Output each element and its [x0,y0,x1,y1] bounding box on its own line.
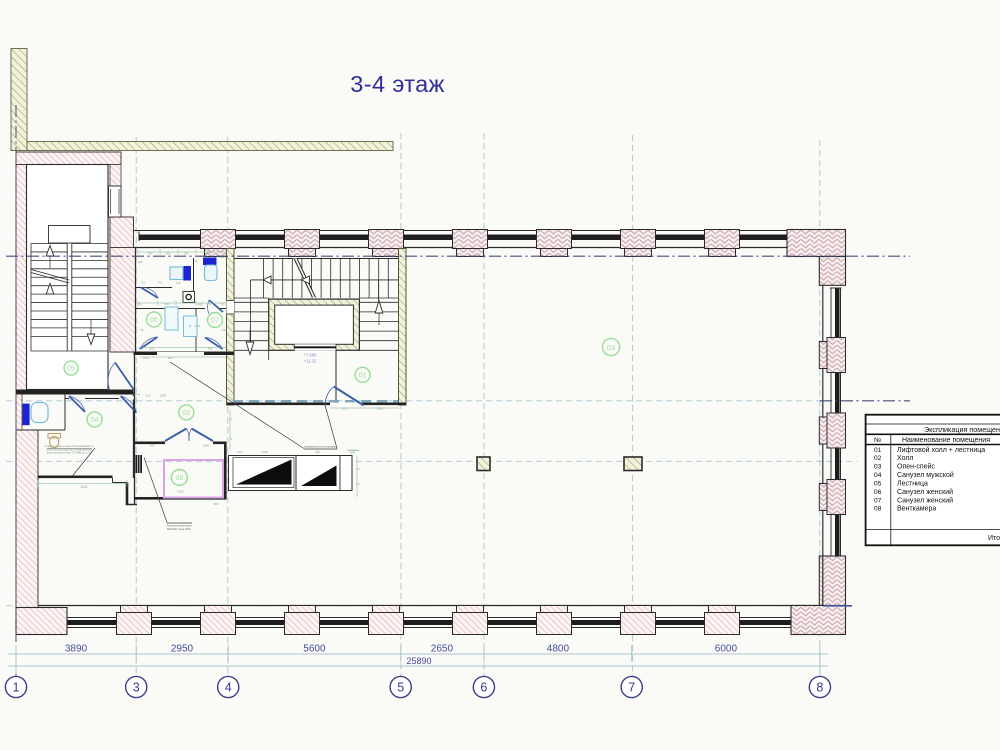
svg-text:2650: 2650 [431,644,454,655]
svg-text:895: 895 [208,347,213,351]
svg-text:Венткамера: Венткамера [897,506,936,513]
svg-text:Экспликация помещений: Экспликация помещений [924,425,1000,434]
svg-text:940: 940 [222,328,227,332]
svg-text:1485: 1485 [194,324,201,328]
svg-text:08: 08 [176,475,184,482]
svg-text:6000: 6000 [715,644,738,655]
svg-text:05: 05 [874,480,882,487]
svg-text:30: 30 [356,467,360,471]
svg-text:1500: 1500 [377,407,384,411]
svg-text:90: 90 [194,259,198,263]
svg-text:2640: 2640 [80,485,87,489]
svg-text:02: 02 [874,455,882,462]
svg-text:помещение для установки: помещение для установки [304,446,336,449]
svg-text:810: 810 [150,347,155,351]
svg-text:1540: 1540 [143,356,150,360]
svg-text:Наименование помещения: Наименование помещения [902,437,990,444]
svg-text:990: 990 [168,356,173,360]
svg-text:945: 945 [150,444,155,448]
svg-text:07: 07 [211,318,219,325]
svg-text:760: 760 [158,281,163,285]
svg-text:90: 90 [140,328,144,332]
svg-text:700: 700 [141,281,146,285]
svg-text:900: 900 [342,407,347,411]
svg-text:3890: 3890 [65,644,88,655]
svg-text:3: 3 [133,681,140,695]
svg-text:1885: 1885 [203,444,210,448]
svg-text:2950: 2950 [171,644,194,655]
svg-text:01: 01 [874,447,882,454]
svg-text:Санузел женский: Санузел женский [897,496,953,504]
svg-text:06: 06 [874,489,882,496]
svg-text:01: 01 [359,372,367,379]
svg-text:880: 880 [220,255,225,259]
svg-text:890: 890 [165,302,170,306]
svg-text:665: 665 [238,450,243,454]
svg-text:216: 216 [146,394,151,398]
svg-text:Итого: Итого [988,535,1000,542]
svg-text:Холл: Холл [897,455,914,462]
svg-text:1580: 1580 [160,394,167,398]
svg-text:04: 04 [91,417,99,424]
svg-text:6: 6 [480,681,487,695]
svg-text:Опен-спейс: Опен-спейс [897,463,935,471]
svg-text:886: 886 [214,502,219,506]
svg-text:4800: 4800 [547,644,570,655]
svg-text:5600: 5600 [303,644,326,655]
svg-text:2920: 2920 [177,490,184,494]
svg-text:80: 80 [356,482,360,486]
svg-text:Санузел мужской: Санузел мужской [897,471,954,479]
svg-text:415: 415 [176,281,181,285]
svg-text:Лифтовой холл + лестница: Лифтовой холл + лестница [897,446,985,454]
svg-text:конструкций (план ТХ-4АВ до н.: конструкций (план ТХ-4АВ до н.у.) [47,451,91,455]
svg-text:+11.32: +11.32 [304,359,317,364]
svg-text:08: 08 [874,506,882,513]
svg-text:07: 07 [874,497,882,504]
svg-text:8: 8 [816,681,823,695]
svg-text:185: 185 [138,260,143,264]
svg-text:5: 5 [397,681,404,695]
svg-text:06: 06 [150,317,158,324]
svg-text:03: 03 [607,343,615,352]
svg-text:02: 02 [182,410,190,417]
svg-text:+7.680: +7.680 [304,353,318,358]
svg-text:№: № [874,437,881,444]
svg-text:Санузел женский: Санузел женский [897,488,953,496]
svg-text:800: 800 [316,450,321,454]
svg-text:800: 800 [350,451,355,455]
svg-text:1885: 1885 [262,450,269,454]
svg-text:7: 7 [628,681,635,695]
svg-text:600х200 (типа АЛН): 600х200 (типа АЛН) [167,527,191,531]
svg-text:4: 4 [225,681,232,695]
svg-text:Лестница: Лестница [897,480,928,487]
svg-text:03: 03 [874,464,882,471]
svg-text:1: 1 [13,681,20,695]
svg-text:04: 04 [874,472,882,479]
svg-text:05: 05 [67,366,75,373]
svg-text:3-4 этаж: 3-4 этаж [350,71,444,97]
svg-text:25890: 25890 [406,656,431,666]
